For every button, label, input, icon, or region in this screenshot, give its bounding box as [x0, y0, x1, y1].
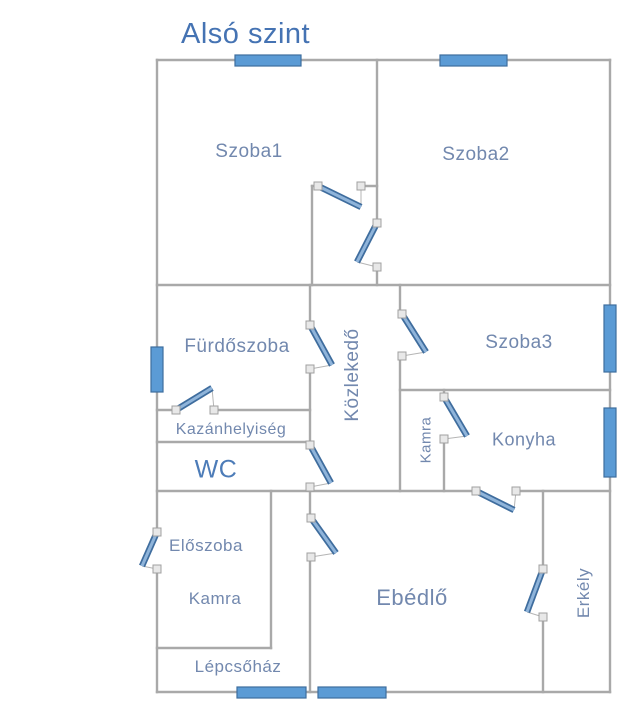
window-lepcsohaz-ablak [237, 687, 306, 698]
room-label-szoba1: Szoba1 [215, 141, 282, 163]
room-label-kozlekedo: Közlekedő [342, 328, 364, 421]
door-hinge-konyha-ebedlo-ajto [472, 487, 480, 495]
door-leaf-konyha-ebedlo-ajto [476, 491, 514, 510]
door-hinge-ebedlo-ajto [307, 553, 315, 561]
door-hinge-kazanhelyiseg-ajto [210, 406, 218, 414]
door-hinge-bejarati-ajto [153, 528, 161, 536]
room-label-kamra-felso: Kamra [418, 417, 435, 464]
door-leaf-erkely-ajto [527, 569, 543, 612]
door-hinge-szoba2-ajto [373, 219, 381, 227]
door-hinge-wc-ajto [306, 483, 314, 491]
door-leaf-wc-ajto [310, 445, 331, 483]
room-label-furdoszoba: Fürdőszoba [184, 336, 289, 358]
window-ebedlo-ablak [318, 687, 386, 698]
door-hinge-furdoszoba-ajto [306, 365, 314, 373]
floor-plan: Alsó szint Szoba1 Szoba2 Fürdőszoba Közl… [0, 0, 631, 722]
window-konyha-ablak [604, 408, 616, 477]
door-leaf-szoba2-ajto [357, 223, 377, 262]
room-label-ebedlo: Ebédlő [376, 585, 448, 611]
door-leaf-ebedlo-ajto [311, 518, 336, 553]
room-label-kazanhelyiseg: Kazánhelyiség [176, 421, 287, 439]
door-hinge-szoba1-ajto [357, 182, 365, 190]
door-hinge-szoba3-ajto [398, 310, 406, 318]
door-leaf-bejarati-ajto [142, 532, 157, 566]
window-szoba2-ablak [440, 55, 507, 66]
window-szoba3-ablak [604, 305, 616, 372]
door-hinge-szoba1-ajto [314, 182, 322, 190]
room-label-lepcsohaz: Lépcsőház [195, 657, 282, 677]
door-hinge-szoba3-ajto [398, 352, 406, 360]
door-hinge-konyha-ebedlo-ajto [512, 487, 520, 495]
room-label-szoba3: Szoba3 [485, 332, 552, 354]
door-leaf-furdoszoba-ajto [310, 325, 332, 365]
floorplan-canvas [0, 0, 631, 722]
room-label-konyha: Konyha [492, 430, 556, 451]
door-hinge-erkely-ajto [539, 613, 547, 621]
door-hinge-bejarati-ajto [153, 565, 161, 573]
window-furdoszoba-ablak [151, 347, 163, 392]
room-label-erkely: Erkély [574, 568, 594, 618]
door-hinge-wc-ajto [306, 441, 314, 449]
window-szoba1-ablak [235, 55, 301, 66]
door-hinge-erkely-ajto [539, 565, 547, 573]
door-leaf-kamra-konyha-ajto [444, 397, 467, 436]
door-hinge-szoba2-ajto [373, 263, 381, 271]
room-label-wc: WC [195, 456, 238, 485]
door-leaf-kazanhelyiseg-ajto [176, 388, 212, 410]
door-leaf-szoba3-ajto [402, 314, 426, 352]
room-label-eloszoba: Előszoba [169, 536, 243, 556]
room-label-szoba2: Szoba2 [442, 144, 509, 166]
door-hinge-kazanhelyiseg-ajto [172, 406, 180, 414]
door-leaf-szoba1-ajto [318, 186, 361, 207]
door-hinge-kamra-konyha-ajto [440, 435, 448, 443]
door-hinge-ebedlo-ajto [307, 514, 315, 522]
door-hinge-kamra-konyha-ajto [440, 393, 448, 401]
door-hinge-furdoszoba-ajto [306, 321, 314, 329]
room-label-kamra-also: Kamra [189, 589, 242, 609]
